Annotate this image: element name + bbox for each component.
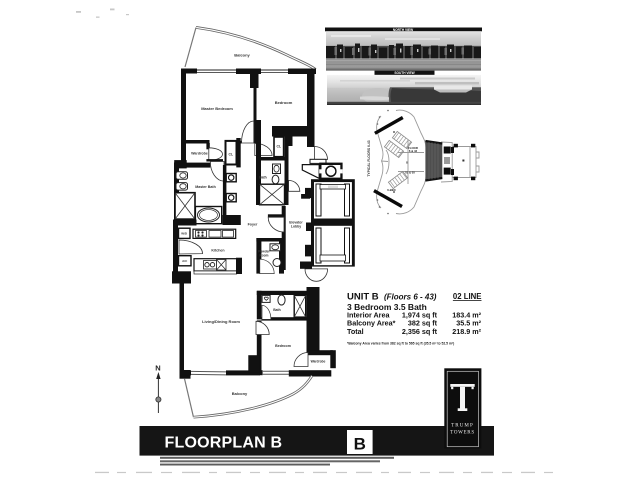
svg-text:6-BED: 6-BED	[387, 188, 395, 192]
svg-text:A/C: A/C	[182, 259, 188, 263]
svg-text:UNIT B: UNIT B	[347, 292, 379, 303]
svg-text:Master Bedroom: Master Bedroom	[201, 106, 233, 111]
svg-text:TYPICAL FLOORS 6-43: TYPICAL FLOORS 6-43	[367, 140, 371, 176]
svg-text:Bedroom: Bedroom	[275, 100, 293, 105]
svg-text:01 & 05: 01 & 05	[405, 170, 415, 174]
svg-text:SOUTH VIEW: SOUTH VIEW	[394, 71, 414, 75]
svg-text:Bedroom: Bedroom	[275, 344, 291, 348]
svg-text:CL: CL	[229, 153, 234, 157]
svg-text:B: B	[406, 161, 408, 165]
svg-text:Foyer: Foyer	[248, 223, 258, 227]
svg-text:Room: Room	[259, 253, 268, 257]
svg-text:Total: Total	[347, 327, 364, 336]
svg-text:TRUMP: TRUMP	[451, 423, 474, 428]
svg-text:Balcony: Balcony	[234, 53, 250, 58]
svg-text:(Floors 6 - 43): (Floors 6 - 43)	[384, 293, 437, 302]
svg-text:Bath: Bath	[273, 308, 281, 312]
svg-text:Balcony: Balcony	[232, 391, 248, 396]
svg-text:6 & 43: 6 & 43	[409, 149, 418, 153]
svg-text:Wardrobe: Wardrobe	[311, 360, 326, 364]
svg-text:2,356 sq ft: 2,356 sq ft	[402, 327, 438, 336]
svg-text:Wardrobe: Wardrobe	[191, 152, 208, 156]
svg-text:FLOORPLAN B: FLOORPLAN B	[165, 435, 283, 452]
svg-text:W/D: W/D	[181, 232, 188, 236]
svg-text:Bath: Bath	[259, 176, 267, 180]
svg-text:B: B	[354, 435, 366, 454]
svg-text:CL: CL	[277, 145, 282, 149]
svg-text:Master Bath: Master Bath	[195, 185, 216, 189]
svg-text:02 LINE: 02 LINE	[453, 292, 482, 301]
svg-text:Living/Dining Room: Living/Dining Room	[202, 319, 240, 324]
svg-text:*Balcony Area varies from 382: *Balcony Area varies from 382 sq ft to 5…	[347, 341, 454, 345]
svg-text:NORTH VIEW: NORTH VIEW	[393, 28, 413, 32]
svg-text:Kitchen: Kitchen	[211, 249, 224, 253]
svg-text:N: N	[155, 364, 160, 373]
svg-text:Lobby: Lobby	[291, 225, 301, 229]
svg-text:218.9 m²: 218.9 m²	[452, 327, 481, 336]
svg-text:TOWERS: TOWERS	[450, 431, 475, 436]
